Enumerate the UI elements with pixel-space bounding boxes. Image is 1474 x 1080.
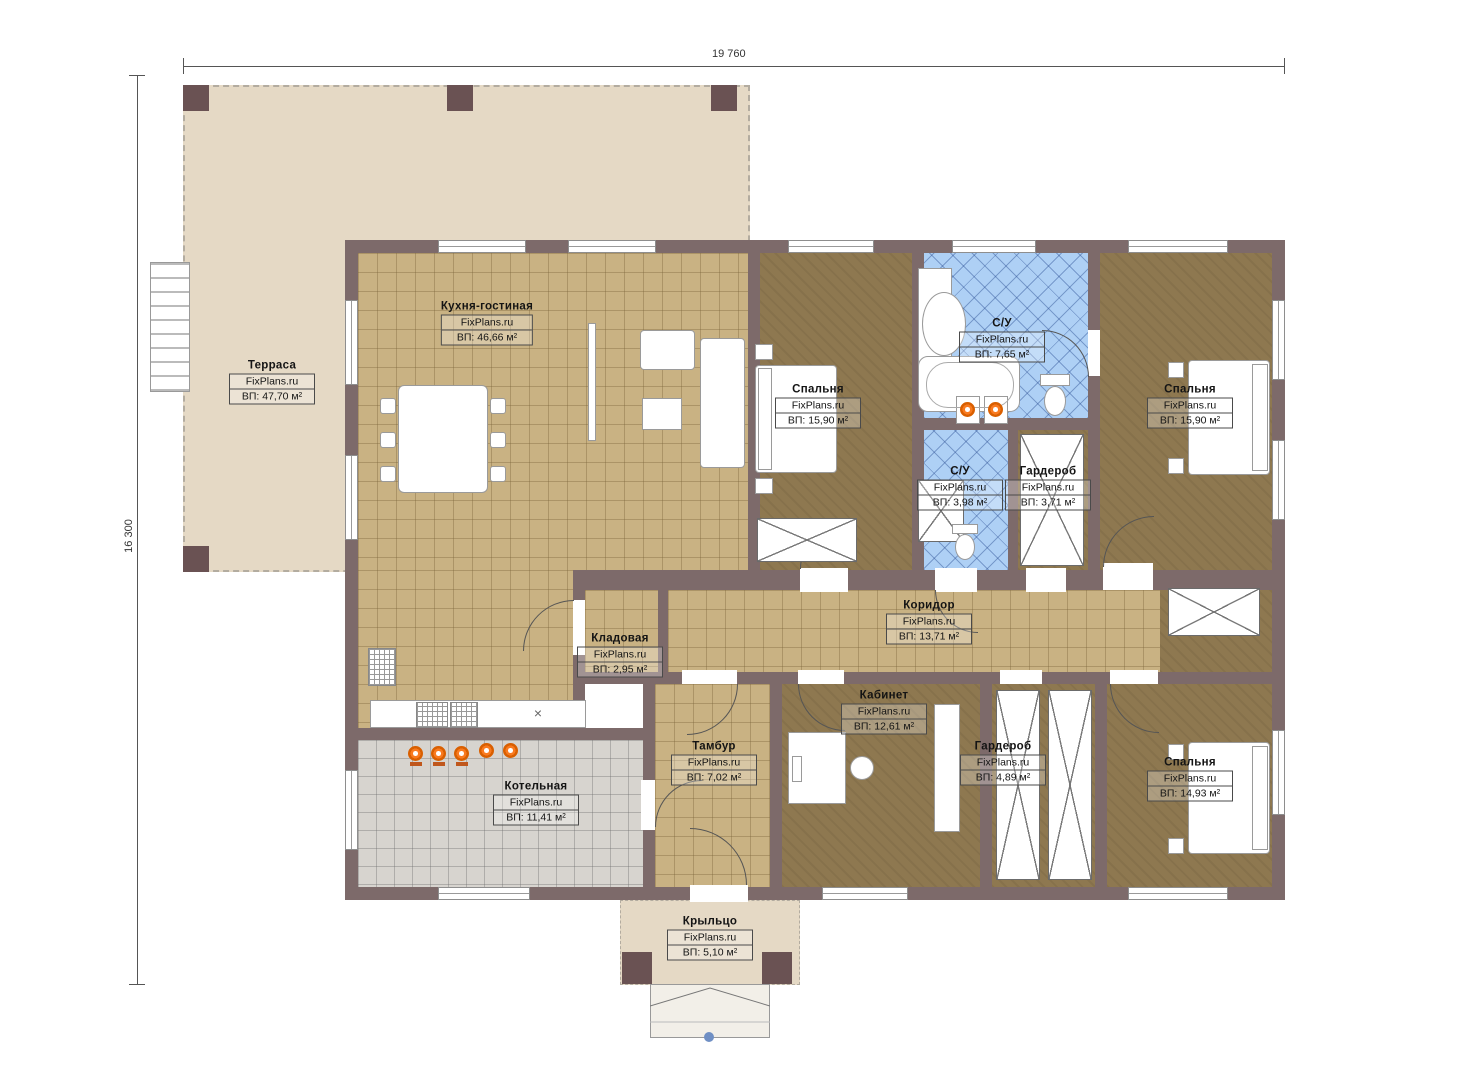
chair <box>490 432 506 448</box>
wardrobe-box <box>1048 690 1092 880</box>
toilet-bowl <box>955 534 975 560</box>
tv-unit <box>588 323 596 441</box>
door-opening <box>1026 568 1066 592</box>
window <box>788 240 874 253</box>
brand-text: FixPlans.ru <box>960 333 1044 348</box>
wall <box>358 728 655 740</box>
room-name: Гардероб <box>1005 466 1091 478</box>
room-label-bedroom1: Спальня FixPlans.ruВП: 15,90 м² <box>775 384 861 429</box>
room-name: Коридор <box>886 600 972 612</box>
room-area: ВП: 47,70 м² <box>230 390 314 404</box>
room-area: ВП: 3,71 м² <box>1006 496 1090 510</box>
sink-mark: × <box>528 700 548 726</box>
room-name: Кухня-гостиная <box>441 301 533 313</box>
marker-dot <box>704 1032 714 1042</box>
room-label-bath2: С/У FixPlans.ruВП: 3,98 м² <box>917 466 1003 511</box>
room-name: Спальня <box>1147 384 1233 396</box>
stove <box>416 702 448 728</box>
radiator-dot <box>454 746 469 761</box>
door-opening <box>641 780 655 830</box>
room-label-terrace: Терраса FixPlans.ruВП: 47,70 м² <box>229 360 315 405</box>
office-chair <box>850 756 874 780</box>
room-area: ВП: 7,65 м² <box>960 348 1044 362</box>
room-area: ВП: 15,90 м² <box>776 414 860 428</box>
brand-text: FixPlans.ru <box>887 615 971 630</box>
door-opening <box>1110 670 1158 684</box>
cabinet <box>934 704 960 832</box>
brand-text: FixPlans.ru <box>442 316 532 331</box>
pillow <box>1252 364 1268 471</box>
room-name: Кладовая <box>577 633 663 645</box>
brand-text: FixPlans.ru <box>842 705 926 720</box>
window <box>822 887 908 900</box>
kitchen-counter <box>370 700 586 728</box>
brand-text: FixPlans.ru <box>672 756 756 771</box>
dimension-line-top <box>183 66 1285 67</box>
window <box>568 240 656 253</box>
porch-post <box>622 952 652 984</box>
radiator-base <box>410 762 422 766</box>
brand-text: FixPlans.ru <box>776 399 860 414</box>
room-name: Тамбур <box>671 741 757 753</box>
room-label-vestibule: Тамбур FixPlans.ruВП: 7,02 м² <box>671 741 757 786</box>
toilet-bowl <box>1044 386 1066 416</box>
radiator-dot <box>408 746 423 761</box>
bathtub-inner <box>926 362 1014 408</box>
coffee-table <box>642 398 682 430</box>
brand-text: FixPlans.ru <box>1006 481 1090 496</box>
brand-text: FixPlans.ru <box>918 481 1002 496</box>
door-opening <box>798 670 844 684</box>
monitor <box>792 756 802 782</box>
room-label-bedroom2: Спальня FixPlans.ruВП: 15,90 м² <box>1147 384 1233 429</box>
terrace-post <box>447 85 473 111</box>
wardrobe-box <box>1168 588 1260 636</box>
radiator-base <box>456 762 468 766</box>
room-area: ВП: 13,71 м² <box>887 630 971 644</box>
toilet-tank <box>952 524 978 534</box>
terrace-post <box>183 85 209 111</box>
room-name: С/У <box>917 466 1003 478</box>
brand-text: FixPlans.ru <box>494 796 578 811</box>
wall <box>770 672 782 887</box>
terrace-post <box>183 546 209 572</box>
porch-steps <box>650 984 770 1038</box>
room-label-boiler: Котельная FixPlans.ruВП: 11,41 м² <box>493 781 579 826</box>
nightstand <box>755 344 773 360</box>
window <box>345 770 358 850</box>
room-name: Кабинет <box>841 690 927 702</box>
brand-text: FixPlans.ru <box>961 756 1045 771</box>
washing-machine-drum <box>960 402 975 417</box>
wall <box>585 570 1272 590</box>
room-name: Котельная <box>493 781 579 793</box>
room-name: С/У <box>959 318 1045 330</box>
dimension-tick <box>1284 58 1285 74</box>
dimension-width-label: 19 760 <box>712 48 746 60</box>
wardrobe-box <box>757 518 857 562</box>
chair <box>490 398 506 414</box>
room-name: Спальня <box>775 384 861 396</box>
sofa <box>700 338 745 468</box>
room-label-office: Кабинет FixPlans.ruВП: 12,61 м² <box>841 690 927 735</box>
brand-text: FixPlans.ru <box>578 648 662 663</box>
dimension-height-label: 16 300 <box>123 519 135 553</box>
room-label-wardrobe2: Гардероб FixPlans.ruВП: 4,89 м² <box>960 741 1046 786</box>
chair <box>380 432 396 448</box>
window <box>1272 300 1285 380</box>
room-name: Крыльцо <box>667 916 753 928</box>
dimension-line-left <box>137 75 138 985</box>
brand-text: FixPlans.ru <box>230 375 314 390</box>
nightstand <box>755 478 773 494</box>
dimension-tick <box>183 58 184 74</box>
room-area: ВП: 3,98 м² <box>918 496 1002 510</box>
fridge <box>368 648 396 686</box>
room-area: ВП: 14,93 м² <box>1148 787 1232 801</box>
dimension-tick <box>129 75 145 76</box>
nightstand <box>1168 838 1184 854</box>
pillow <box>1252 746 1268 850</box>
radiator-base <box>433 762 445 766</box>
room-label-bath1: С/У FixPlans.ruВП: 7,65 м² <box>959 318 1045 363</box>
room-area: ВП: 7,02 м² <box>672 771 756 785</box>
radiator-dot <box>479 743 494 758</box>
brand-text: FixPlans.ru <box>1148 772 1232 787</box>
room-label-pantry: Кладовая FixPlans.ruВП: 2,95 м² <box>577 633 663 678</box>
porch-post <box>762 952 792 984</box>
washing-machine-drum <box>988 402 1003 417</box>
radiator-dot <box>431 746 446 761</box>
door-opening <box>1103 563 1153 590</box>
chair <box>380 466 396 482</box>
nightstand <box>1168 362 1184 378</box>
radiator-dot <box>503 743 518 758</box>
room-label-wardrobe1: Гардероб FixPlans.ruВП: 3,71 м² <box>1005 466 1091 511</box>
pillow <box>758 368 772 470</box>
brand-text: FixPlans.ru <box>1148 399 1232 414</box>
dining-table <box>398 385 488 493</box>
door-opening <box>682 670 737 684</box>
room-area: ВП: 11,41 м² <box>494 811 578 825</box>
room-area: ВП: 12,61 м² <box>842 720 926 734</box>
window <box>952 240 1036 253</box>
room-label-bedroom3: Спальня FixPlans.ruВП: 14,93 м² <box>1147 757 1233 802</box>
room-area: ВП: 15,90 м² <box>1148 414 1232 428</box>
window <box>1128 887 1228 900</box>
window <box>345 455 358 540</box>
wall <box>1095 672 1107 887</box>
window <box>1128 240 1228 253</box>
room-name: Спальня <box>1147 757 1233 769</box>
chair <box>380 398 396 414</box>
armchair <box>640 330 695 370</box>
nightstand <box>1168 458 1184 474</box>
floor-plan: 19 760 16 300 <box>0 0 1474 1080</box>
room-label-corridor: Коридор FixPlans.ruВП: 13,71 м² <box>886 600 972 645</box>
terrace-post <box>711 85 737 111</box>
door-opening <box>935 568 977 592</box>
toilet-tank <box>1040 374 1070 386</box>
room-area: ВП: 46,66 м² <box>442 331 532 345</box>
door-opening <box>1000 670 1042 684</box>
room-name: Гардероб <box>960 741 1046 753</box>
terrace-steps <box>150 262 190 392</box>
window <box>345 300 358 385</box>
brand-text: FixPlans.ru <box>668 931 752 946</box>
door-opening <box>800 568 848 592</box>
room-area: ВП: 5,10 м² <box>668 946 752 960</box>
window <box>438 887 530 900</box>
window <box>1272 730 1285 815</box>
room-label-kitchen: Кухня-гостиная FixPlans.ruВП: 46,66 м² <box>441 301 533 346</box>
room-label-porch: Крыльцо FixPlans.ruВП: 5,10 м² <box>667 916 753 961</box>
chair <box>490 466 506 482</box>
door-opening <box>1088 330 1100 376</box>
wall <box>1088 253 1100 570</box>
window <box>1272 440 1285 520</box>
room-area: ВП: 4,89 м² <box>961 771 1045 785</box>
entrance-door-opening <box>690 885 748 902</box>
oven <box>450 702 478 728</box>
window <box>438 240 526 253</box>
room-name: Терраса <box>229 360 315 372</box>
dimension-tick <box>129 984 145 985</box>
room-area: ВП: 2,95 м² <box>578 663 662 677</box>
